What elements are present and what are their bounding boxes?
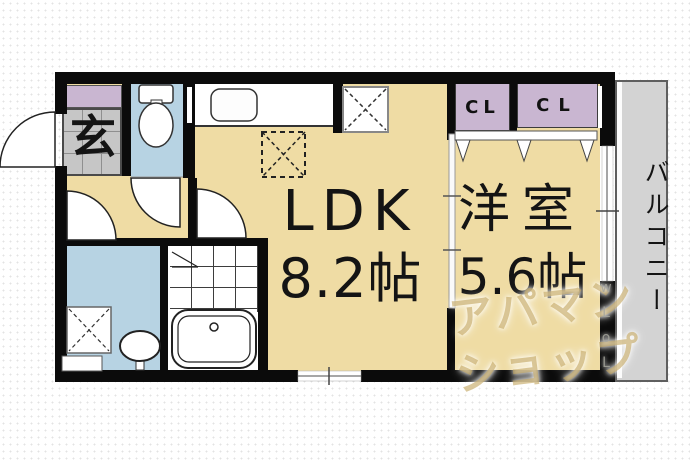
washroom-door-arc: [67, 191, 116, 240]
bath-fold-door: [172, 252, 198, 267]
washbasin-icon: [120, 331, 160, 370]
ldk-size-label: 8.2帖: [243, 252, 458, 306]
bottom-window: [298, 367, 361, 385]
western-room-size-label: 5.6帖: [440, 252, 605, 302]
toilet-icon: [139, 85, 173, 147]
refrigerator-space-icon: [343, 87, 388, 132]
western-room-label: 洋室: [442, 184, 602, 236]
ldk-door-arc: [197, 189, 246, 238]
entrance-door-arc: [0, 112, 55, 167]
entrance-label: 玄: [68, 114, 118, 160]
floorplan-canvas: CL CL: [0, 0, 690, 460]
washroom-niche: [62, 356, 102, 371]
appliance-space-icon: [262, 132, 305, 177]
closet-folding-doors: [455, 131, 597, 161]
washer-space-icon: [67, 307, 111, 353]
toilet-door-arc: [131, 178, 180, 227]
ldk-label: LDK: [240, 184, 460, 240]
balcony-label: バルコニー: [615, 104, 668, 374]
kitchen-sink-icon: [211, 89, 257, 121]
bathtub-icon: [172, 310, 256, 368]
